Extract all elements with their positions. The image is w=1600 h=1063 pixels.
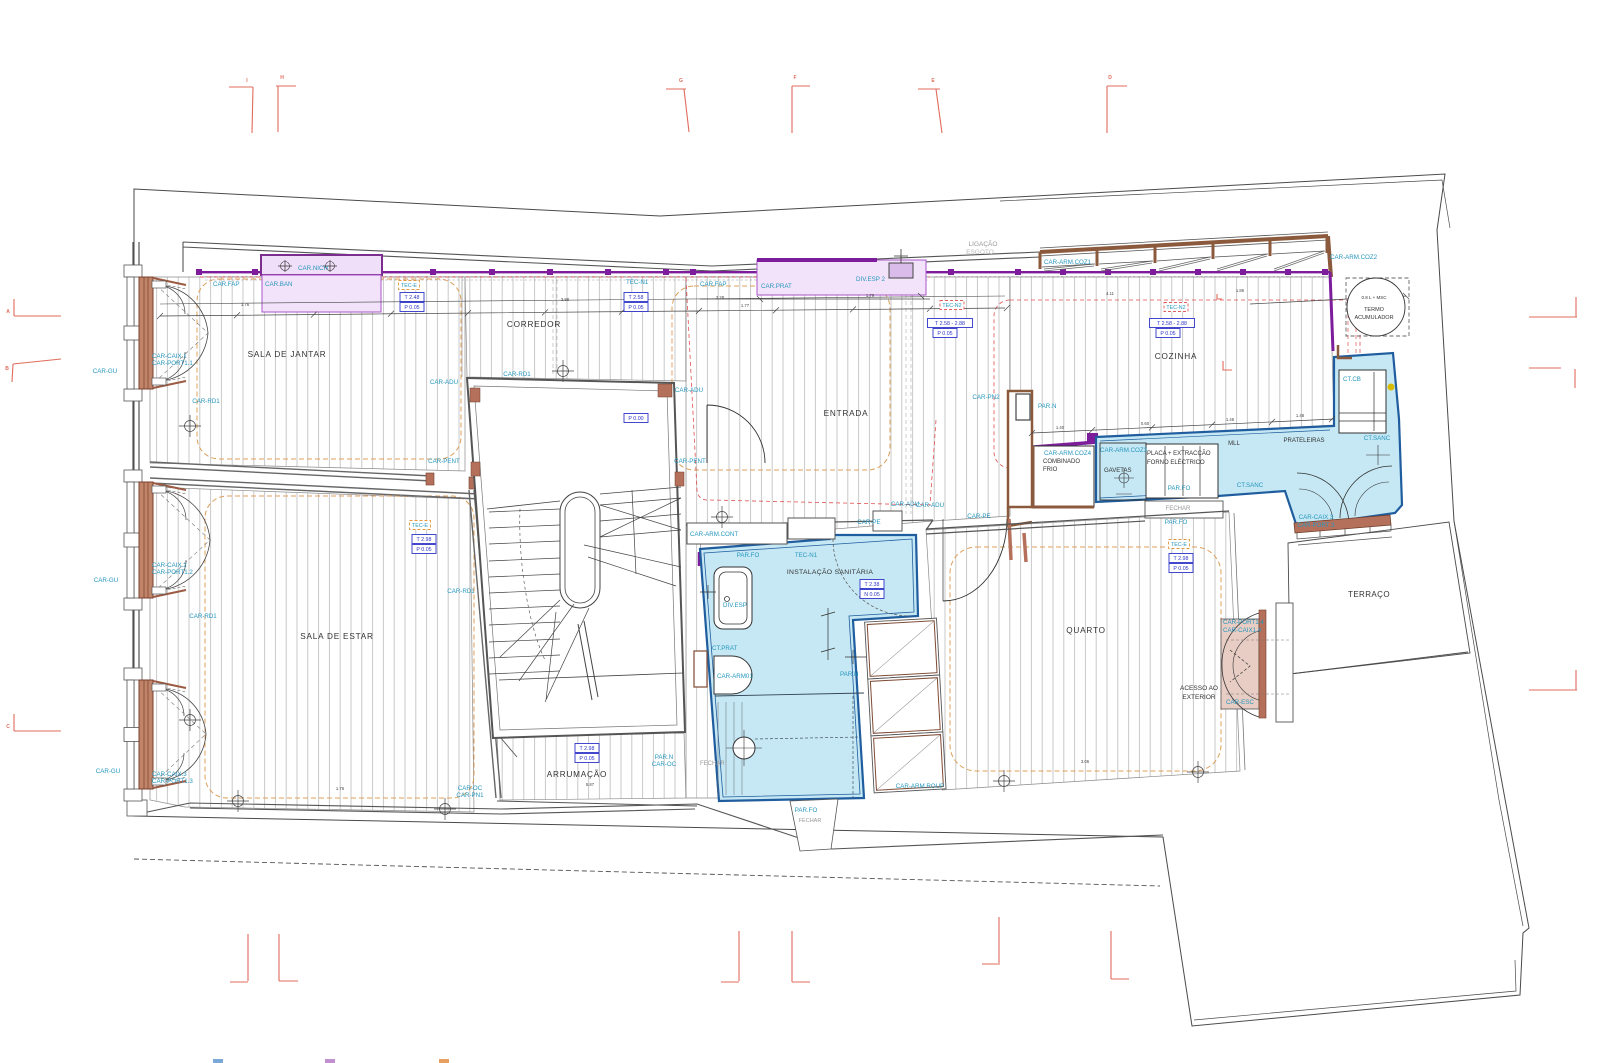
svg-text:CAR-PE: CAR-PE xyxy=(967,513,990,520)
svg-text:CAR-ADU: CAR-ADU xyxy=(891,501,919,508)
svg-text:PRATELEIRAS: PRATELEIRAS xyxy=(1284,438,1325,444)
svg-text:P 0.05: P 0.05 xyxy=(416,547,431,553)
svg-text:T 2.58 - 2.88: T 2.58 - 2.88 xyxy=(1157,321,1187,327)
svg-text:FORNO ELÉCTRICO: FORNO ELÉCTRICO xyxy=(1147,459,1205,466)
svg-text:1.77: 1.77 xyxy=(741,303,750,308)
svg-text:DIV.ESP 2: DIV.ESP 2 xyxy=(856,276,885,283)
svg-text:P 0.05: P 0.05 xyxy=(579,756,594,762)
svg-text:ENTRADA: ENTRADA xyxy=(824,409,869,418)
svg-text:T 2.98: T 2.98 xyxy=(1174,556,1189,562)
svg-text:CAR-CAIX.3: CAR-CAIX.3 xyxy=(152,771,187,778)
svg-text:A: A xyxy=(6,309,10,315)
svg-text:P 0.05: P 0.05 xyxy=(1173,566,1188,572)
svg-text:T 2.48: T 2.48 xyxy=(405,295,420,301)
svg-text:TEC-N1: TEC-N1 xyxy=(795,552,818,559)
svg-text:3.06: 3.06 xyxy=(1081,759,1090,764)
svg-text:B: B xyxy=(5,366,9,372)
svg-text:CT.SANC: CT.SANC xyxy=(1237,482,1264,489)
svg-text:1.76: 1.76 xyxy=(336,786,345,791)
svg-text:P 0.05: P 0.05 xyxy=(628,305,643,311)
svg-text:INSTALAÇÃO SANITÁRIA: INSTALAÇÃO SANITÁRIA xyxy=(787,567,873,576)
svg-text:CAR-CAIX.1: CAR-CAIX.1 xyxy=(152,353,187,360)
svg-text:TEC-E: TEC-E xyxy=(412,523,428,529)
svg-text:TEC-E: TEC-E xyxy=(1171,542,1187,548)
svg-text:ARRUMAÇÃO: ARRUMAÇÃO xyxy=(547,769,607,779)
svg-text:CAR-PENT: CAR-PENT xyxy=(428,458,460,465)
svg-text:1.76: 1.76 xyxy=(241,302,250,307)
svg-text:CAR-GU: CAR-GU xyxy=(94,577,118,584)
svg-text:PAR.FO: PAR.FO xyxy=(1165,519,1188,526)
svg-text:CAR-RD1: CAR-RD1 xyxy=(189,613,217,620)
svg-text:CAR.BAN: CAR.BAN xyxy=(265,281,293,288)
svg-text:CAR-ADU: CAR-ADU xyxy=(430,379,458,386)
svg-text:C: C xyxy=(6,724,10,730)
svg-text:N 0.05: N 0.05 xyxy=(864,592,880,598)
svg-text:MLL: MLL xyxy=(1228,441,1240,447)
svg-text:CAR-PN2: CAR-PN2 xyxy=(972,394,1000,401)
svg-text:T 2.58 - 2.88: T 2.58 - 2.88 xyxy=(935,321,965,327)
svg-text:CAR.NICH: CAR.NICH xyxy=(298,265,328,272)
svg-text:EXTERIOR: EXTERIOR xyxy=(1182,694,1216,701)
svg-text:4.11: 4.11 xyxy=(1106,291,1115,296)
svg-text:1.86: 1.86 xyxy=(1236,288,1245,293)
svg-text:CAR-PN1: CAR-PN1 xyxy=(456,792,484,799)
svg-text:CAR-ARM.COZ1: CAR-ARM.COZ1 xyxy=(1044,259,1092,266)
svg-text:1.48: 1.48 xyxy=(1226,417,1235,422)
svg-text:CAR-PORT 3: CAR-PORT 3 xyxy=(1297,522,1335,529)
svg-text:LIGAÇÃO: LIGAÇÃO xyxy=(969,239,998,248)
svg-text:F: F xyxy=(793,75,796,81)
svg-text:T 2.98: T 2.98 xyxy=(580,746,595,752)
svg-text:SALA DE JANTAR: SALA DE JANTAR xyxy=(248,350,327,359)
svg-text:SALA DE ESTAR: SALA DE ESTAR xyxy=(300,632,374,641)
svg-text:ACESSO AO: ACESSO AO xyxy=(1180,685,1218,692)
svg-text:5.87: 5.87 xyxy=(586,782,595,787)
svg-text:CAR-PENT: CAR-PENT xyxy=(674,458,706,465)
svg-text:GAVETAS: GAVETAS xyxy=(1104,468,1131,474)
svg-text:TEC-N1: TEC-N1 xyxy=(626,279,649,286)
svg-text:P 0.05: P 0.05 xyxy=(937,331,952,337)
svg-text:CAR-OC: CAR-OC xyxy=(652,761,677,768)
svg-text:FECHAR: FECHAR xyxy=(1166,506,1191,512)
svg-text:PAR.N: PAR.N xyxy=(840,671,858,678)
svg-text:CAR-PORT1.4: CAR-PORT1.4 xyxy=(1223,619,1264,626)
svg-text:0.60: 0.60 xyxy=(1141,421,1150,426)
svg-text:CAR-ESC: CAR-ESC xyxy=(1226,699,1254,706)
svg-text:P 0.00: P 0.00 xyxy=(628,416,643,422)
svg-text:CT.SANC: CT.SANC xyxy=(1364,435,1391,442)
svg-text:FECHAR: FECHAR xyxy=(700,761,725,767)
svg-text:3.28: 3.28 xyxy=(716,295,725,300)
svg-text:CAR-ADU: CAR-ADU xyxy=(675,387,703,394)
svg-text:TEC-N2: TEC-N2 xyxy=(1166,305,1185,311)
svg-text:CAR-ARM.COZ4: CAR-ARM.COZ4 xyxy=(1044,450,1092,457)
svg-text:CAR-ARM.COZ2: CAR-ARM.COZ2 xyxy=(1330,254,1378,261)
svg-text:1.79: 1.79 xyxy=(866,293,875,298)
svg-text:CAR.PRAT: CAR.PRAT xyxy=(761,283,792,290)
svg-text:CAR-RD1: CAR-RD1 xyxy=(192,398,220,405)
svg-text:COZINHA: COZINHA xyxy=(1155,352,1197,361)
svg-text:T 2.58: T 2.58 xyxy=(629,295,644,301)
svg-text:FRIO: FRIO xyxy=(1043,467,1058,473)
svg-text:DIV.ESP: DIV.ESP xyxy=(723,602,747,609)
svg-text:CAR-OC: CAR-OC xyxy=(458,785,483,792)
svg-text:TEC-N2: TEC-N2 xyxy=(942,303,961,309)
svg-text:H: H xyxy=(280,75,284,81)
svg-text:PAR.FO: PAR.FO xyxy=(1168,485,1191,492)
svg-text:P 0.05: P 0.05 xyxy=(1160,331,1175,337)
svg-text:PAR.N: PAR.N xyxy=(655,754,673,761)
svg-text:PAR.FO: PAR.FO xyxy=(795,807,818,814)
svg-text:CT.CB: CT.CB xyxy=(1343,376,1361,383)
svg-text:ACUMULADOR: ACUMULADOR xyxy=(1354,315,1393,321)
svg-text:CAR-ARM.COZ3: CAR-ARM.COZ3 xyxy=(1100,447,1148,454)
svg-text:TERRAÇO: TERRAÇO xyxy=(1348,590,1390,599)
svg-text:CORREDOR: CORREDOR xyxy=(507,320,561,329)
svg-text:CAR-RD1: CAR-RD1 xyxy=(503,371,531,378)
svg-text:CAR-PE: CAR-PE xyxy=(857,519,880,526)
svg-text:T 2.98: T 2.98 xyxy=(417,537,432,543)
svg-text:CAR-RD1: CAR-RD1 xyxy=(447,588,475,595)
svg-text:PLACA + EXTRACÇÃO: PLACA + EXTRACÇÃO xyxy=(1147,450,1211,457)
svg-text:CAR-ADU: CAR-ADU xyxy=(916,502,944,509)
svg-text:P 0.05: P 0.05 xyxy=(404,305,419,311)
svg-text:CAR-ARM01: CAR-ARM01 xyxy=(717,673,753,680)
svg-text:CT.PRAT: CT.PRAT xyxy=(712,645,738,652)
svg-text:T 2.38: T 2.38 xyxy=(865,582,880,588)
svg-text:G: G xyxy=(679,78,683,84)
svg-text:CAR-CAIX1.4: CAR-CAIX1.4 xyxy=(1223,627,1262,634)
svg-text:CAR-PORT1.3: CAR-PORT1.3 xyxy=(152,778,193,785)
svg-text:FECHAR: FECHAR xyxy=(799,818,822,824)
svg-text:COMBINADO: COMBINADO xyxy=(1043,459,1080,465)
svg-text:TEC-E: TEC-E xyxy=(401,283,417,289)
svg-text:PAR.N: PAR.N xyxy=(1038,403,1056,410)
svg-text:3.88: 3.88 xyxy=(561,297,570,302)
svg-text:PAR.FO: PAR.FO xyxy=(737,552,760,559)
svg-text:CAR.FAP: CAR.FAP xyxy=(700,281,726,288)
svg-text:0.8 L + MSC: 0.8 L + MSC xyxy=(1362,295,1388,300)
svg-text:CAR-PORT1.1: CAR-PORT1.1 xyxy=(152,360,193,367)
svg-text:CAR-GU: CAR-GU xyxy=(93,368,117,375)
svg-text:CAR.FAP: CAR.FAP xyxy=(213,281,239,288)
svg-text:CAR-ARM.ROUP: CAR-ARM.ROUP xyxy=(896,783,944,790)
svg-text:D: D xyxy=(1108,75,1112,81)
svg-text:QUARTO: QUARTO xyxy=(1066,626,1106,635)
svg-text:CAR-CAIX 3: CAR-CAIX 3 xyxy=(1299,514,1334,521)
svg-text:CAR-ARM.CONT: CAR-ARM.CONT xyxy=(690,531,738,538)
svg-text:1.48: 1.48 xyxy=(1296,413,1305,418)
svg-text:CAR-GU: CAR-GU xyxy=(96,768,120,775)
svg-text:ESGOTO: ESGOTO xyxy=(966,249,994,256)
svg-text:CAR-CAIX.2: CAR-CAIX.2 xyxy=(152,562,187,569)
svg-text:CAR-PORT1.2: CAR-PORT1.2 xyxy=(152,569,193,576)
svg-text:TERMO: TERMO xyxy=(1364,307,1385,313)
svg-text:1.40: 1.40 xyxy=(1056,425,1065,430)
